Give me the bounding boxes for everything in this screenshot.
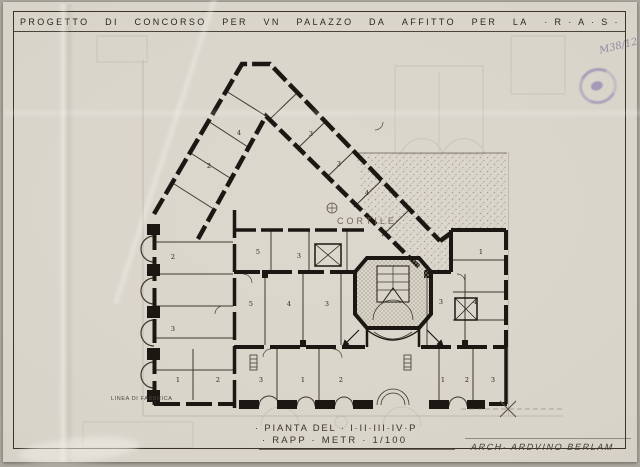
room-number: 2: [339, 376, 343, 384]
room-number: 3: [491, 376, 495, 384]
caption-underline: [259, 449, 455, 450]
paper-crease: [58, 4, 74, 462]
room-number: 5: [256, 248, 260, 256]
courtyard-label: CORTILE: [337, 216, 397, 226]
room-number: 2: [465, 376, 469, 384]
room-number: 3: [325, 300, 329, 308]
circled-cross-mark: [327, 203, 337, 213]
room-number: 1: [301, 376, 305, 384]
caption-scale: · RAPP · METR · 1/100: [262, 435, 407, 446]
paper-crease: [5, 108, 640, 118]
architect-signature: ARCH· ARDVINO BERLAM: [470, 442, 616, 452]
room-number: 3: [171, 325, 175, 333]
room-number: 3: [297, 252, 301, 260]
room-number: 1: [441, 376, 445, 384]
signature-line: [465, 438, 631, 439]
room-number: 5: [249, 300, 253, 308]
room-number: 2: [216, 376, 220, 384]
room-number: 4: [365, 189, 369, 197]
room-number: 1: [176, 376, 180, 384]
room-number: 4: [473, 298, 477, 306]
room-number: 3: [309, 130, 313, 138]
floor-plan-svg: 24334235354334112312123: [3, 2, 640, 467]
paper-sheet: PROGETTO DI CONCORSO PER VN PALAZZO DA A…: [3, 2, 637, 462]
scanned-drawing-sheet: PROGETTO DI CONCORSO PER VN PALAZZO DA A…: [0, 0, 640, 467]
room-number: 4: [237, 129, 241, 137]
grand-staircase: [343, 258, 443, 346]
room-number: 3: [439, 298, 443, 306]
caption-plan-title: · PIANTA DEL · I·II·III·IV·P: [255, 423, 417, 434]
room-number: 1: [479, 248, 483, 256]
radiators: [250, 355, 411, 370]
room-number: 2: [171, 253, 175, 261]
room-number: 2: [207, 162, 211, 170]
room-number: 4: [287, 300, 291, 308]
building-line-label: LINEA DI FABBRICA: [111, 396, 173, 402]
room-number: 3: [259, 376, 263, 384]
courtyard-stipple: [356, 152, 507, 270]
room-number: 3: [337, 160, 341, 168]
